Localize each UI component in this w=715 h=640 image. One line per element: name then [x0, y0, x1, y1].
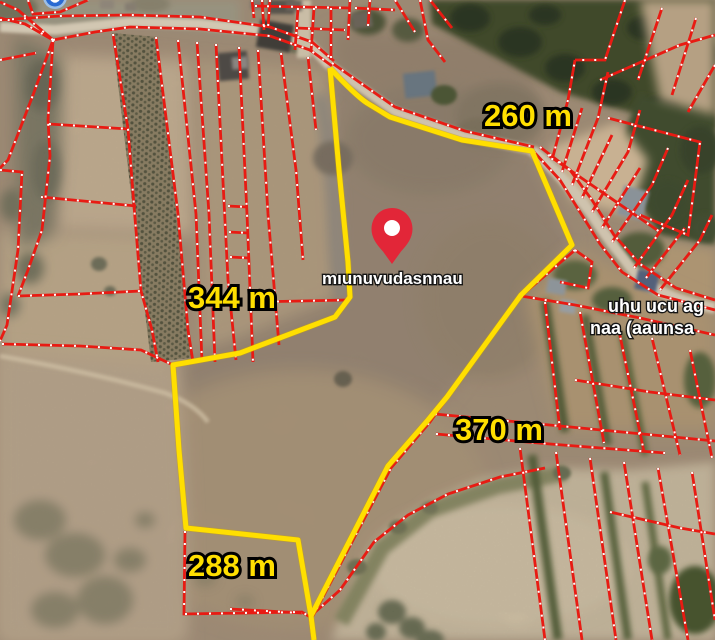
svg-text:uhu ucu ag: uhu ucu ag: [608, 296, 704, 316]
svg-text:naa (aaunsa: naa (aaunsa: [590, 318, 695, 338]
svg-text:344 m: 344 m: [188, 280, 276, 315]
svg-text:mıunuvudasnnau: mıunuvudasnnau: [322, 269, 463, 288]
svg-text:260 m: 260 m: [484, 98, 572, 133]
svg-text:370 m: 370 m: [455, 412, 543, 447]
svg-text:288 m: 288 m: [188, 548, 276, 583]
